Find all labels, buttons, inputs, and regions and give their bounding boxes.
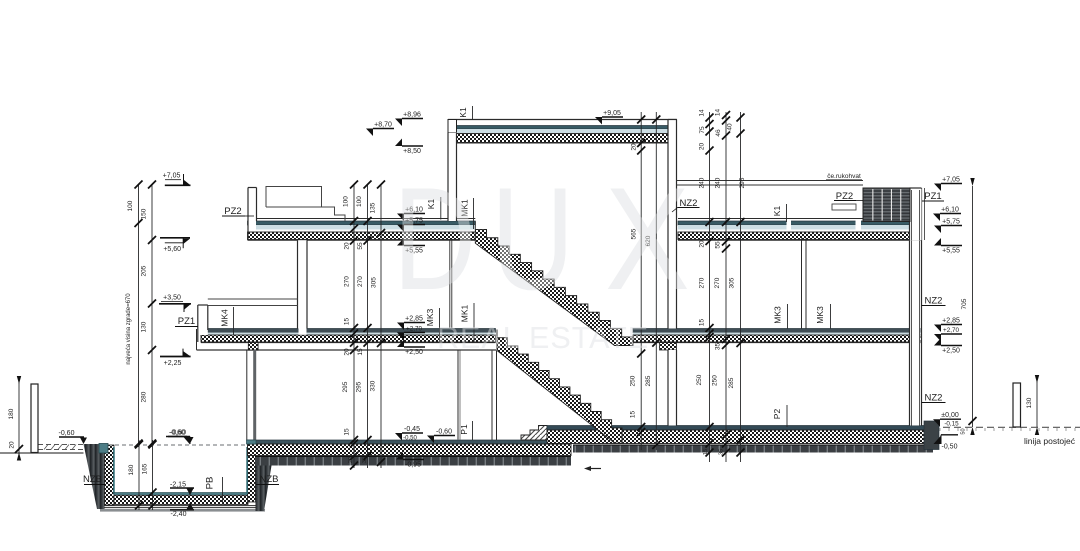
svg-text:-0,60: -0,60 [170,430,186,437]
svg-text:15: 15 [630,411,637,419]
svg-text:20: 20 [348,457,354,463]
svg-text:+5,55: +5,55 [942,248,960,255]
svg-text:+8,96: +8,96 [403,111,421,118]
svg-text:100: 100 [356,196,363,207]
svg-text:+5,60: +5,60 [163,246,181,253]
svg-text:270: 270 [714,277,721,288]
svg-text:20: 20 [344,348,351,356]
svg-text:75: 75 [699,126,706,134]
svg-text:35: 35 [715,343,722,351]
svg-text:+2,70: +2,70 [406,325,422,332]
svg-text:-0,60: -0,60 [436,428,452,435]
svg-text:20: 20 [631,143,638,151]
svg-text:130: 130 [1026,397,1033,408]
svg-text:+5,75: +5,75 [942,218,960,225]
svg-text:330: 330 [370,380,377,391]
svg-text:+2,70: +2,70 [943,327,959,334]
svg-text:165: 165 [142,463,149,474]
svg-text:150: 150 [141,208,148,219]
svg-text:35: 35 [719,449,725,455]
svg-text:15: 15 [357,348,364,356]
svg-text:+6,10: +6,10 [941,206,959,213]
svg-text:X: X [605,157,690,320]
svg-text:če.rukohvat: če.rukohvat [827,173,861,180]
svg-text:20: 20 [699,240,706,248]
svg-text:135: 135 [370,202,377,213]
svg-text:+2,50: +2,50 [405,349,423,356]
svg-text:PZ1: PZ1 [924,191,941,202]
svg-text:270: 270 [357,276,364,287]
svg-text:+2,25: +2,25 [164,360,182,367]
svg-text:270: 270 [344,276,351,287]
svg-text:-0,95: -0,95 [405,462,421,469]
svg-text:P1: P1 [459,424,469,435]
svg-text:±0,00: ±0,00 [941,412,959,419]
svg-text:MK3: MK3 [815,306,825,324]
svg-text:285: 285 [728,377,735,388]
svg-text:D: D [393,157,476,320]
svg-text:15: 15 [344,318,351,326]
svg-text:+8,50: +8,50 [403,148,421,155]
svg-text:180: 180 [128,464,135,475]
svg-text:NZ2: NZ2 [925,296,943,307]
svg-text:+3,50: +3,50 [163,295,181,302]
svg-text:305: 305 [371,277,378,288]
svg-text:270: 270 [699,277,706,288]
svg-text:15: 15 [703,449,709,455]
svg-text:+7,05: +7,05 [942,176,960,183]
svg-text:20: 20 [344,242,351,250]
svg-text:MK3: MK3 [773,306,783,324]
svg-text:linija postojeć: linija postojeć [1024,436,1076,446]
svg-text:250: 250 [696,374,703,385]
svg-text:240: 240 [715,177,722,188]
svg-text:NZB: NZB [83,474,102,485]
svg-text:PB: PB [205,477,216,490]
svg-text:205: 205 [141,265,148,276]
svg-text:-0,50: -0,50 [942,444,958,451]
svg-text:NZB: NZB [260,474,279,485]
svg-text:20: 20 [9,441,16,449]
svg-text:+2,50: +2,50 [942,348,960,355]
svg-text:PZ1: PZ1 [178,316,195,327]
svg-text:250: 250 [712,375,719,386]
svg-text:-2,40: -2,40 [171,511,187,518]
svg-text:-0,50: -0,50 [403,436,417,442]
svg-text:REAL ESTATE: REAL ESTATE [437,321,649,355]
svg-text:14: 14 [715,109,722,117]
svg-text:305: 305 [729,277,736,288]
svg-text:35: 35 [362,457,368,463]
svg-text:130: 130 [141,321,148,332]
svg-text:705: 705 [961,298,968,309]
svg-text:K1: K1 [458,107,468,118]
svg-text:PZ2: PZ2 [224,206,241,217]
svg-text:+2,85: +2,85 [942,317,960,324]
svg-text:240: 240 [699,177,706,188]
svg-text:+7,05: +7,05 [163,172,181,179]
svg-text:100: 100 [343,196,350,207]
svg-text:-0,60: -0,60 [59,430,75,437]
svg-text:55: 55 [715,241,722,249]
svg-text:K1: K1 [772,206,782,217]
svg-text:MK4: MK4 [220,309,230,327]
svg-text:295: 295 [739,177,746,188]
svg-text:najveća visina zgrade=670: najveća visina zgrade=670 [126,293,132,365]
svg-text:P2: P2 [772,409,782,420]
svg-text:-0,15: -0,15 [944,421,959,428]
svg-text:20: 20 [699,143,706,151]
svg-text:40: 40 [727,123,734,131]
svg-text:180: 180 [8,408,15,419]
svg-text:46: 46 [715,129,722,137]
svg-text:14: 14 [699,109,706,117]
svg-text:+8,70: +8,70 [374,121,392,128]
svg-text:+9,05: +9,05 [603,110,621,117]
svg-text:15: 15 [344,428,351,436]
svg-text:295: 295 [356,381,363,392]
svg-text:15: 15 [699,319,706,327]
svg-text:250: 250 [630,375,637,386]
svg-text:-0,45: -0,45 [404,426,420,433]
svg-text:100: 100 [127,200,134,211]
svg-text:295: 295 [342,381,349,392]
svg-text:280: 280 [141,391,148,402]
svg-text:285: 285 [645,375,652,386]
svg-text:U: U [491,157,574,320]
svg-text:NZ2: NZ2 [925,393,943,404]
svg-text:50: 50 [961,428,967,434]
svg-text:55: 55 [357,242,364,250]
